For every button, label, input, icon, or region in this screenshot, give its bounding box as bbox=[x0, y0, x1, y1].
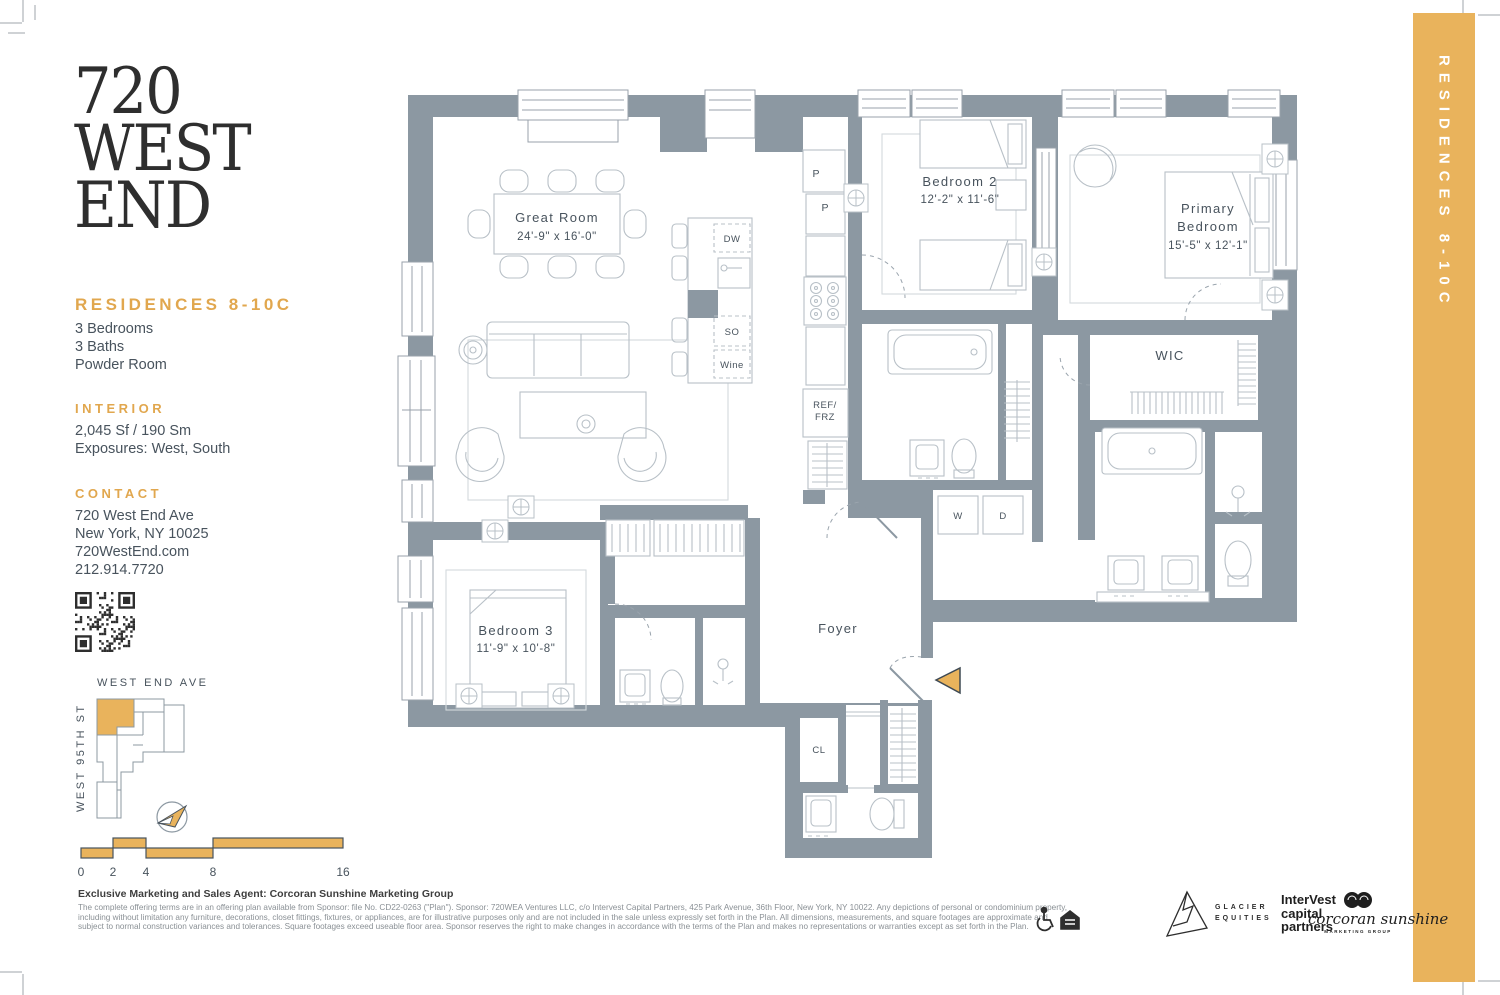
foyer-label: Foyer bbox=[818, 621, 858, 636]
window bbox=[705, 90, 755, 138]
great-room-label: Great Room bbox=[515, 210, 599, 225]
corcoran-name: corcoran sunshine bbox=[1308, 910, 1408, 928]
ref-label: REF/ bbox=[813, 400, 837, 411]
room-hallway bbox=[1043, 335, 1078, 540]
glacier-name: GLACIER bbox=[1215, 904, 1268, 911]
washer-label: W bbox=[953, 511, 962, 522]
bed-2a bbox=[920, 120, 1026, 168]
window bbox=[1228, 90, 1280, 117]
window bbox=[912, 90, 962, 117]
window bbox=[402, 608, 433, 700]
side-band: RESIDENCES 8-10C bbox=[1413, 13, 1475, 982]
bed-2b bbox=[920, 240, 1026, 290]
cl-label: CL bbox=[812, 745, 825, 756]
window bbox=[398, 356, 435, 466]
great-room-dims: 24'-9" x 16'-0" bbox=[517, 231, 597, 243]
window bbox=[1116, 90, 1166, 117]
mountain-icon bbox=[1163, 888, 1211, 940]
brochure-page: 720 WEST END RESIDENCES 8-10C 3 Bedrooms… bbox=[0, 0, 1500, 995]
window bbox=[398, 556, 433, 602]
side-band-label: RESIDENCES 8-10C bbox=[1436, 55, 1453, 310]
dw-label: DW bbox=[724, 234, 741, 245]
legal-disclaimer: The complete offering terms are in an of… bbox=[78, 903, 1048, 932]
bedroom-3-label: Bedroom 3 bbox=[478, 623, 553, 638]
so-label: SO bbox=[725, 327, 740, 338]
equal-housing-icon bbox=[1061, 911, 1079, 929]
pantry-2-label: P bbox=[821, 202, 828, 214]
disclaimer-line: including without limitation any furnitu… bbox=[78, 913, 1048, 923]
nightstand bbox=[996, 180, 1026, 210]
accessibility-icons bbox=[1036, 906, 1082, 932]
primary-bedroom-label2: Bedroom bbox=[1177, 219, 1239, 234]
tub-2 bbox=[888, 330, 992, 374]
window bbox=[858, 90, 910, 117]
disclaimer-line: The complete offering terms are in an of… bbox=[78, 903, 1048, 913]
sink-2 bbox=[910, 440, 944, 478]
agent-line: Exclusive Marketing and Sales Agent: Cor… bbox=[78, 888, 453, 900]
room-corridor bbox=[846, 705, 880, 792]
wine-label: Wine bbox=[720, 360, 744, 371]
corcoran-logo: corcoran sunshine MARKETING GROUP bbox=[1308, 890, 1408, 934]
wic-label: WIC bbox=[1155, 348, 1184, 363]
corcoran-sub: MARKETING GROUP bbox=[1308, 929, 1408, 934]
dryer-label: D bbox=[999, 511, 1006, 522]
powder-sink bbox=[806, 796, 836, 836]
wheelchair-icon bbox=[1038, 908, 1053, 931]
corcoran-icon bbox=[1338, 890, 1378, 910]
frz-label: FRZ bbox=[815, 412, 835, 423]
range bbox=[804, 277, 846, 325]
sink-3 bbox=[620, 670, 650, 704]
primary-tub bbox=[1102, 428, 1202, 474]
room-foyer-east bbox=[933, 540, 1095, 600]
window bbox=[1036, 148, 1056, 260]
window bbox=[1062, 90, 1114, 117]
room-great-room bbox=[433, 117, 848, 522]
primary-bedroom-dims: 15'-5" x 12'-1" bbox=[1168, 240, 1248, 252]
pantry-1-label: P bbox=[812, 168, 819, 180]
pantry-2-box bbox=[806, 194, 845, 234]
room-vestibule bbox=[888, 657, 933, 703]
bedroom-3-dims: 11'-9" x 10'-8" bbox=[477, 643, 556, 655]
hall-closets bbox=[606, 520, 744, 556]
pantry-1-box bbox=[803, 150, 845, 192]
entry-arrow bbox=[936, 668, 960, 693]
window bbox=[402, 262, 433, 336]
bedroom-2-label: Bedroom 2 bbox=[922, 174, 997, 189]
window bbox=[518, 90, 628, 142]
window bbox=[402, 480, 433, 522]
disclaimer-line: subject to normal construction variances… bbox=[78, 922, 1048, 932]
glacier-logo: GLACIER EQUITIES bbox=[1163, 888, 1283, 940]
glacier-name2: EQUITIES bbox=[1215, 915, 1272, 922]
bedroom-2-dims: 12'-2" x 11'-6" bbox=[921, 194, 1000, 206]
floor-plan: Great Room 24'-9" x 16'-0" Bedroom 2 12'… bbox=[0, 0, 1500, 995]
primary-bedroom-label: Primary bbox=[1181, 201, 1235, 216]
